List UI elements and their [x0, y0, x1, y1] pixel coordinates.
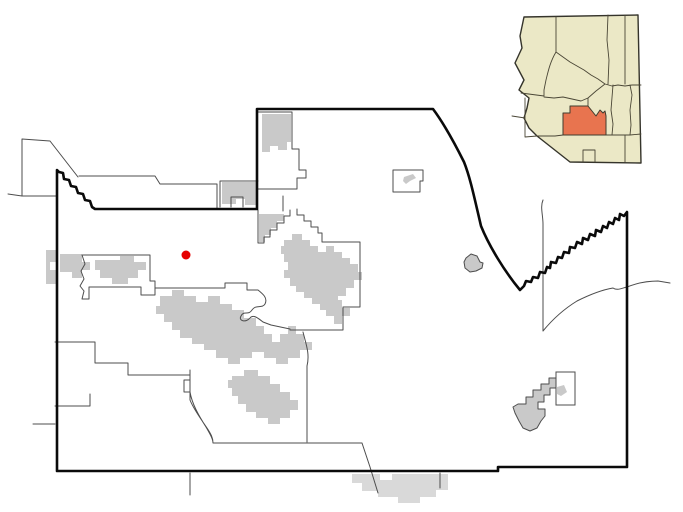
main-map: [8, 109, 670, 503]
location-marker-dot: [182, 251, 191, 260]
map-canvas: [0, 0, 683, 512]
urban-area-shading-outside-county: [352, 474, 448, 503]
inset-state-map: [512, 15, 641, 163]
inset-state-outline: [515, 15, 641, 163]
county-locator-map-page: [0, 0, 683, 512]
